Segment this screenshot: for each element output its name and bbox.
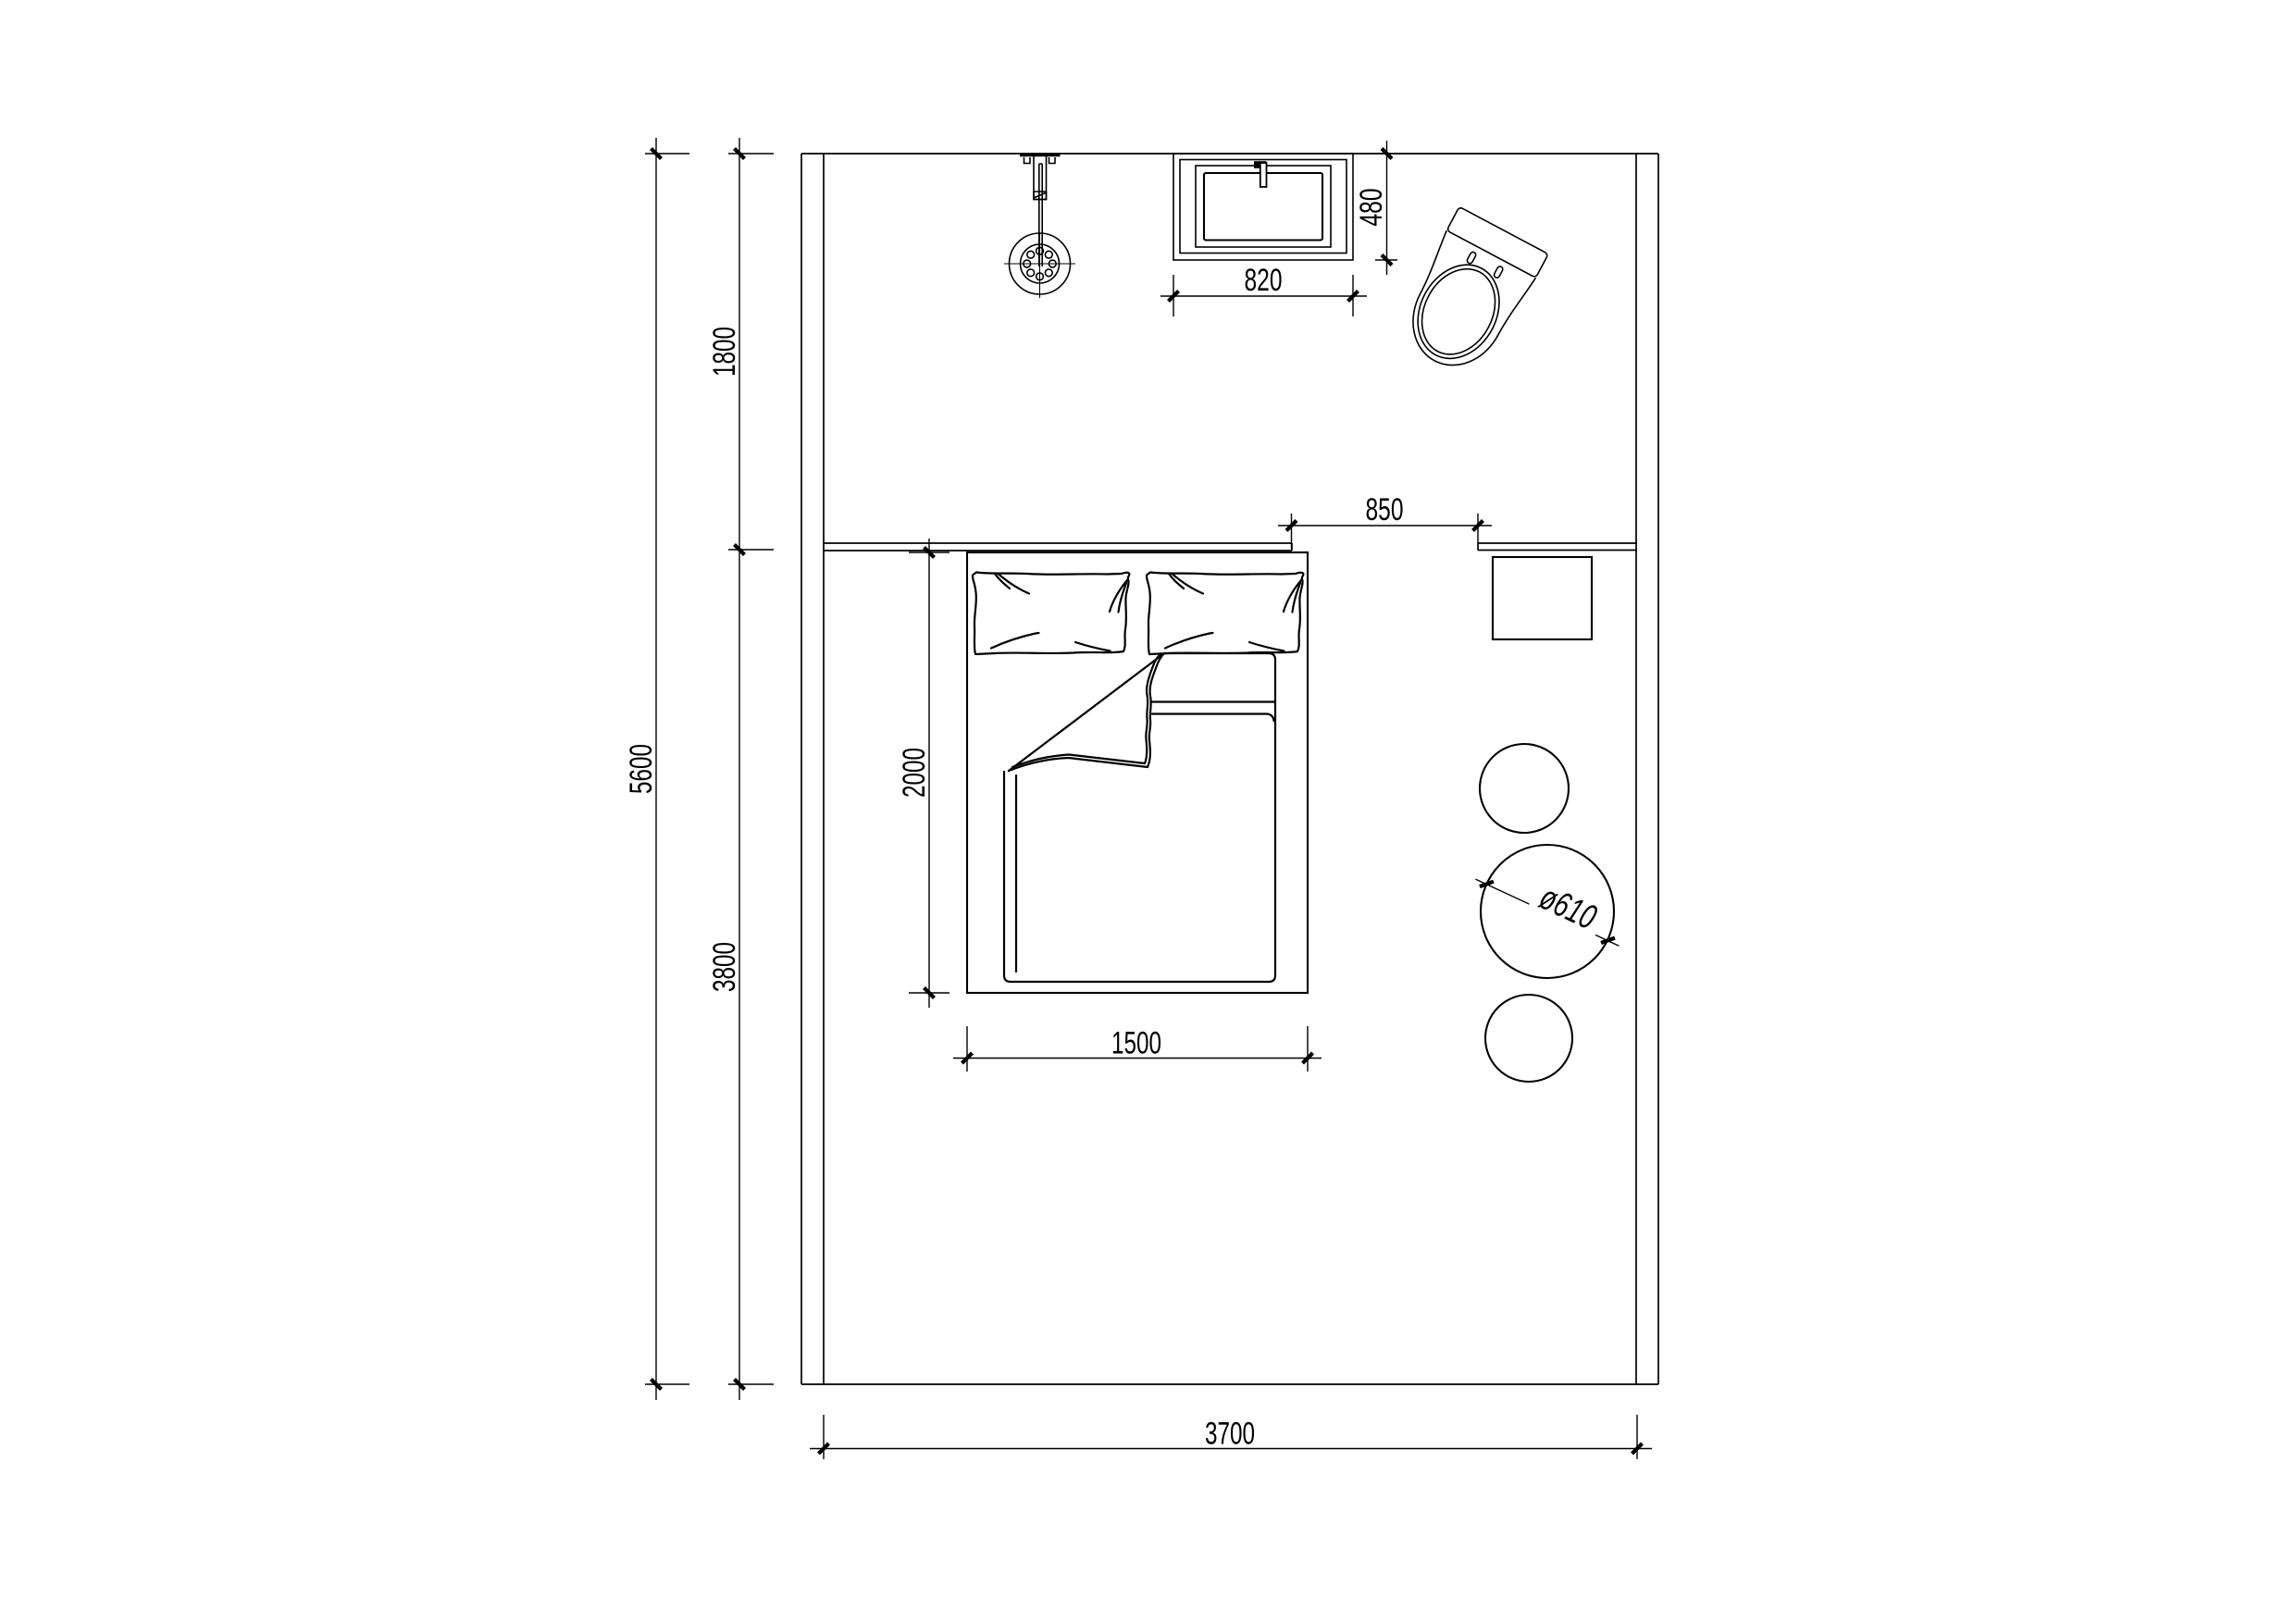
svg-text:480: 480 [1354, 189, 1389, 227]
svg-text:1500: 1500 [1111, 1026, 1161, 1061]
svg-text:820: 820 [1245, 263, 1283, 298]
svg-text:1800: 1800 [707, 327, 742, 377]
svg-text:2000: 2000 [897, 748, 932, 798]
svg-text:3700: 3700 [1205, 1417, 1255, 1452]
svg-text:3800: 3800 [707, 942, 742, 992]
svg-text:850: 850 [1366, 492, 1404, 527]
svg-text:5600: 5600 [624, 744, 659, 794]
